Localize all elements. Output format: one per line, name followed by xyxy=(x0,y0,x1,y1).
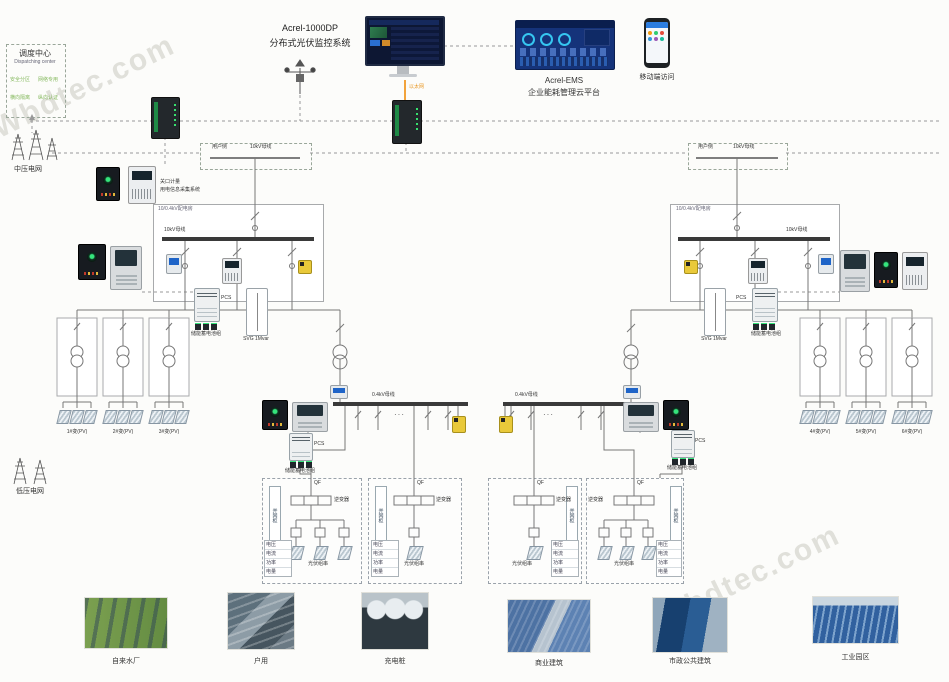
anti-islanding-device-right xyxy=(840,250,870,292)
anti-islanding-device xyxy=(110,246,142,290)
hv-risers xyxy=(251,158,741,237)
qf-label-1: QF xyxy=(314,481,321,487)
phone-screen xyxy=(646,22,668,63)
scada-monitor xyxy=(365,16,445,78)
monitor-stand xyxy=(397,66,409,74)
transformer-label-2: 2#变(PV) xyxy=(103,430,143,436)
svg-label: SVG 1Mvar xyxy=(238,337,274,343)
battery-modules-lower-right xyxy=(672,458,694,465)
dispatch-title: 调度中心 xyxy=(6,49,64,58)
pcs-label-lower-left: PCS xyxy=(314,442,324,448)
busbar-10kv-right xyxy=(678,237,830,241)
gateway-metering-label: 关口计量 xyxy=(160,180,180,186)
ems-map-panel xyxy=(584,29,610,46)
bus04-label-left: 0.4kV母线 xyxy=(372,393,395,399)
ems-header xyxy=(516,21,614,28)
medium-voltage-grid-label: 中压电网 xyxy=(14,166,42,174)
inverter-label-3: 逆变器 xyxy=(556,498,571,504)
ems-desc: 企业能耗管理云平台 xyxy=(504,88,624,97)
grid-cabinet-strip-3: 并网柜 xyxy=(566,486,578,544)
wireless-meter-left xyxy=(298,260,312,274)
vertical-auth-label: 纵向认证 xyxy=(38,96,58,102)
mobile-phone xyxy=(644,18,670,68)
caption-water-plant: 自来水厂 xyxy=(85,656,167,666)
pv-string-label-1: 光伏组串 xyxy=(288,562,348,568)
substation-right-label: 10/0.4kV配电房 xyxy=(676,207,711,213)
grid-cabinet-strip-2: 并网柜 xyxy=(375,486,387,544)
legend-3: 电压电流 功率电量 xyxy=(551,540,579,577)
pcs-cabinet-lower-left xyxy=(289,433,313,461)
ems-gauge-3 xyxy=(558,33,571,46)
storage-relay-left xyxy=(262,400,288,430)
user-side-label: 用户侧 xyxy=(212,145,227,151)
caption-charging: 充电桩 xyxy=(362,656,428,666)
feeder-meter-right xyxy=(748,258,768,284)
busbar-04kv-right xyxy=(503,402,638,406)
multi-meter-left xyxy=(166,254,182,274)
mv-towers-icon xyxy=(12,130,57,160)
svg-cabinet-right xyxy=(704,288,726,336)
pcs-cabinet-upper-right xyxy=(752,288,778,322)
comm-gateway-center xyxy=(392,100,422,144)
transformer-cubicles xyxy=(57,318,932,396)
scada-tile-orange xyxy=(382,40,390,46)
protection-relay xyxy=(96,167,120,201)
mobile-access-label: 移动端访问 xyxy=(626,74,688,82)
pv-string-label-2: 光伏组串 xyxy=(392,562,436,568)
grid-cabinet-strip-4: 并网柜 xyxy=(670,486,682,544)
pcs-cabinet-upper-left xyxy=(194,288,220,322)
transformer-label-1: 1#变(PV) xyxy=(57,430,97,436)
security-zone-label: 安全分区 xyxy=(10,78,30,84)
wireless-meter-right xyxy=(684,260,698,274)
svg-label-right: SVG 1Mvar xyxy=(696,337,732,343)
scada-desc: 分布式光伏监控系统 xyxy=(252,38,368,48)
transformer-label-4: 4#变(PV) xyxy=(800,430,840,436)
scada-screen xyxy=(365,16,445,66)
caption-commercial: 商业建筑 xyxy=(508,658,590,668)
wireless-meter-lv-left xyxy=(452,416,466,433)
low-voltage-grid-label: 低压电网 xyxy=(16,488,44,496)
battery-label-right: 储能蓄电池组 xyxy=(738,332,794,338)
ethernet-label: 以太网 xyxy=(409,85,424,91)
qf-label-2: QF xyxy=(417,481,424,487)
bus10-label-right: 10kV母线 xyxy=(733,145,754,151)
battery-label: 储能蓄电池组 xyxy=(178,332,234,338)
inverter-circuits xyxy=(291,478,654,546)
scada-screen-header xyxy=(369,20,439,25)
bus10-inner-left: 10kV母线 xyxy=(164,228,185,234)
battery-label-lower-left: 储能蓄电池组 xyxy=(272,469,328,475)
storage-protection-right xyxy=(623,402,659,432)
scada-name: Acrel-1000DP xyxy=(258,23,362,33)
phone-app-icons xyxy=(648,31,666,41)
pcs-label-lower-right: PCS xyxy=(695,439,705,445)
battery-label-lower-right: 储能蓄电池组 xyxy=(654,466,710,472)
scada-map-tile xyxy=(370,27,387,38)
comm-gateway-left xyxy=(151,97,180,139)
monitor-base xyxy=(389,74,417,77)
bus10-label: 10kV母线 xyxy=(250,145,271,151)
scada-data-grid xyxy=(391,27,439,60)
qf-label-4: QF xyxy=(637,481,644,487)
ems-gauge-2 xyxy=(540,33,553,46)
wireless-meter-lv-right xyxy=(499,416,513,433)
transformer-label-6: 6#变(PV) xyxy=(892,430,932,436)
transformer-label-3: 3#变(PV) xyxy=(149,430,189,436)
multi-meter-right xyxy=(818,254,834,274)
storage-protection-left xyxy=(292,402,328,432)
feeder-ellipsis-left: ··· xyxy=(394,410,405,419)
bus04-label-right: 0.4kV母线 xyxy=(515,393,538,399)
up-arrow xyxy=(29,114,35,120)
ems-data-rows xyxy=(520,48,608,56)
scada-tile-blue xyxy=(370,40,380,46)
busbar-10kv-left xyxy=(162,237,314,241)
pcs-cabinet-lower-right xyxy=(671,430,695,458)
busbar-04kv-left xyxy=(333,402,468,406)
battery-modules-right xyxy=(753,323,775,330)
inverter-label-1: 逆变器 xyxy=(334,498,349,504)
qf-label-3: QF xyxy=(537,481,544,487)
bus10-inner-right: 10kV母线 xyxy=(786,228,807,234)
energy-meter-right xyxy=(902,252,928,290)
pv-protection-relay xyxy=(78,244,106,280)
feeder-ellipsis-right: ··· xyxy=(543,410,554,419)
feeder-meter-left xyxy=(222,258,242,284)
weather-station-icon xyxy=(285,60,315,94)
inverter-label-4: 逆变器 xyxy=(588,498,603,504)
battery-modules-lower-left xyxy=(290,461,312,468)
legend-2: 电压电流 功率电量 xyxy=(371,540,399,577)
dispatch-subtitle: Dispatching center xyxy=(6,60,64,66)
caption-residential: 户用 xyxy=(228,656,294,666)
lv-towers-icon xyxy=(14,458,46,484)
lv-bus-meter-right xyxy=(623,385,641,399)
ems-gauge-1 xyxy=(522,33,535,46)
ems-name: Acrel-EMS xyxy=(514,76,614,85)
pv-brackets xyxy=(63,396,926,408)
lv-bus-meter-left xyxy=(330,385,348,399)
ems-dashboard xyxy=(515,20,615,70)
caption-industrial: 工业园区 xyxy=(813,652,898,662)
caption-municipal: 市政公共建筑 xyxy=(645,656,735,666)
protection-relay-right xyxy=(874,252,898,288)
gateway-energy-meter xyxy=(128,166,156,204)
lv-risers xyxy=(333,310,638,402)
ems-chart xyxy=(520,57,608,66)
inverter-label-2: 逆变器 xyxy=(436,498,451,504)
substation-left-label: 10/0.4kV配电房 xyxy=(158,207,193,213)
pv-string-label-3: 光伏组串 xyxy=(500,562,544,568)
battery-modules xyxy=(195,323,217,330)
svg-cabinet-left xyxy=(246,288,268,336)
horizontal-isolation-label: 横向隔离 xyxy=(10,96,30,102)
pcs-label: PCS xyxy=(221,296,231,302)
pv-string-label-4: 光伏组串 xyxy=(596,562,652,568)
legend-4: 电压电流 功率电量 xyxy=(656,540,682,577)
circuit-wiring xyxy=(0,0,949,682)
diagram-canvas: Wbdtec.com Wbdtec.com 调度中心 Dispatching c… xyxy=(0,0,949,682)
pcs-label-right: PCS xyxy=(736,296,746,302)
metering-system-label: 用电信息采集系统 xyxy=(160,188,200,194)
network-dedicated-label: 网络专用 xyxy=(38,78,58,84)
phone-screen-header xyxy=(646,22,668,28)
storage-relay-right xyxy=(663,400,689,430)
user-side-label-right: 用户侧 xyxy=(698,145,713,151)
legend-1: 电压电流 功率电量 xyxy=(264,540,292,577)
grid-cabinet-strip-1: 并网柜 xyxy=(269,486,281,544)
transformer-label-5: 5#变(PV) xyxy=(846,430,886,436)
